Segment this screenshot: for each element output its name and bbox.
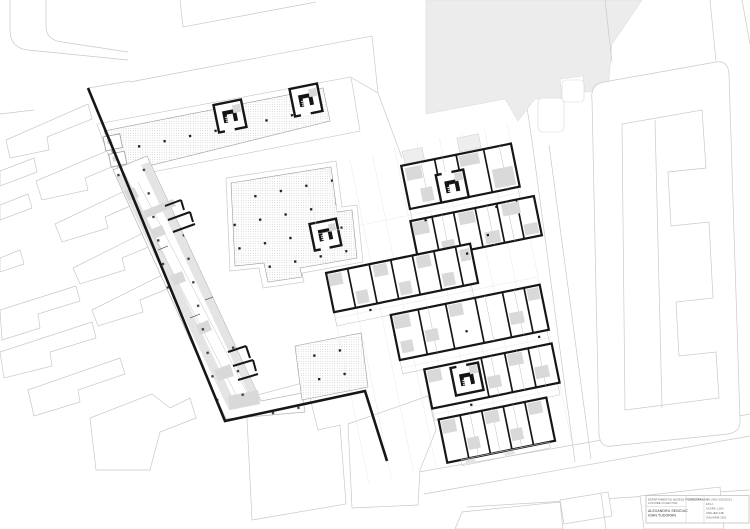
title-block-info-4: ATELIER 24B xyxy=(706,511,724,515)
site-plan-sheet: DEPARTAMENTUL BAZELE PROIECTARII LOCUIRE… xyxy=(0,0,750,529)
title-block-author-2: IOAN TUDORAN xyxy=(648,514,676,518)
site-plan-canvas: DEPARTAMENTUL BAZELE PROIECTARII LOCUIRE… xyxy=(0,0,750,529)
strip-stair-core-west xyxy=(213,99,246,132)
title-block-info-2: ETAJ xyxy=(706,502,713,506)
south-deck xyxy=(295,333,368,400)
plaza-stair-core xyxy=(309,219,341,251)
title-block-author-1: ALEXANDRU SENCIUC xyxy=(648,509,688,513)
title-block-info-5: IANUARIE 2021 xyxy=(706,516,727,520)
unit-cluster xyxy=(304,122,584,485)
cluster-stair-core-north xyxy=(436,170,469,203)
title-block-info-1: AN UNIV 2020/2021 xyxy=(706,498,732,502)
title-block: DEPARTAMENTUL BAZELE PROIECTARII LOCUIRE… xyxy=(646,496,749,524)
strip-stair-core-east xyxy=(289,83,322,116)
context-building-right xyxy=(592,0,750,446)
title-block-info-3: SCARA 1:200 xyxy=(706,507,724,511)
cluster-stair-core-south xyxy=(451,363,484,396)
title-block-project: LOCUIRE COLECTIVA xyxy=(648,501,678,505)
